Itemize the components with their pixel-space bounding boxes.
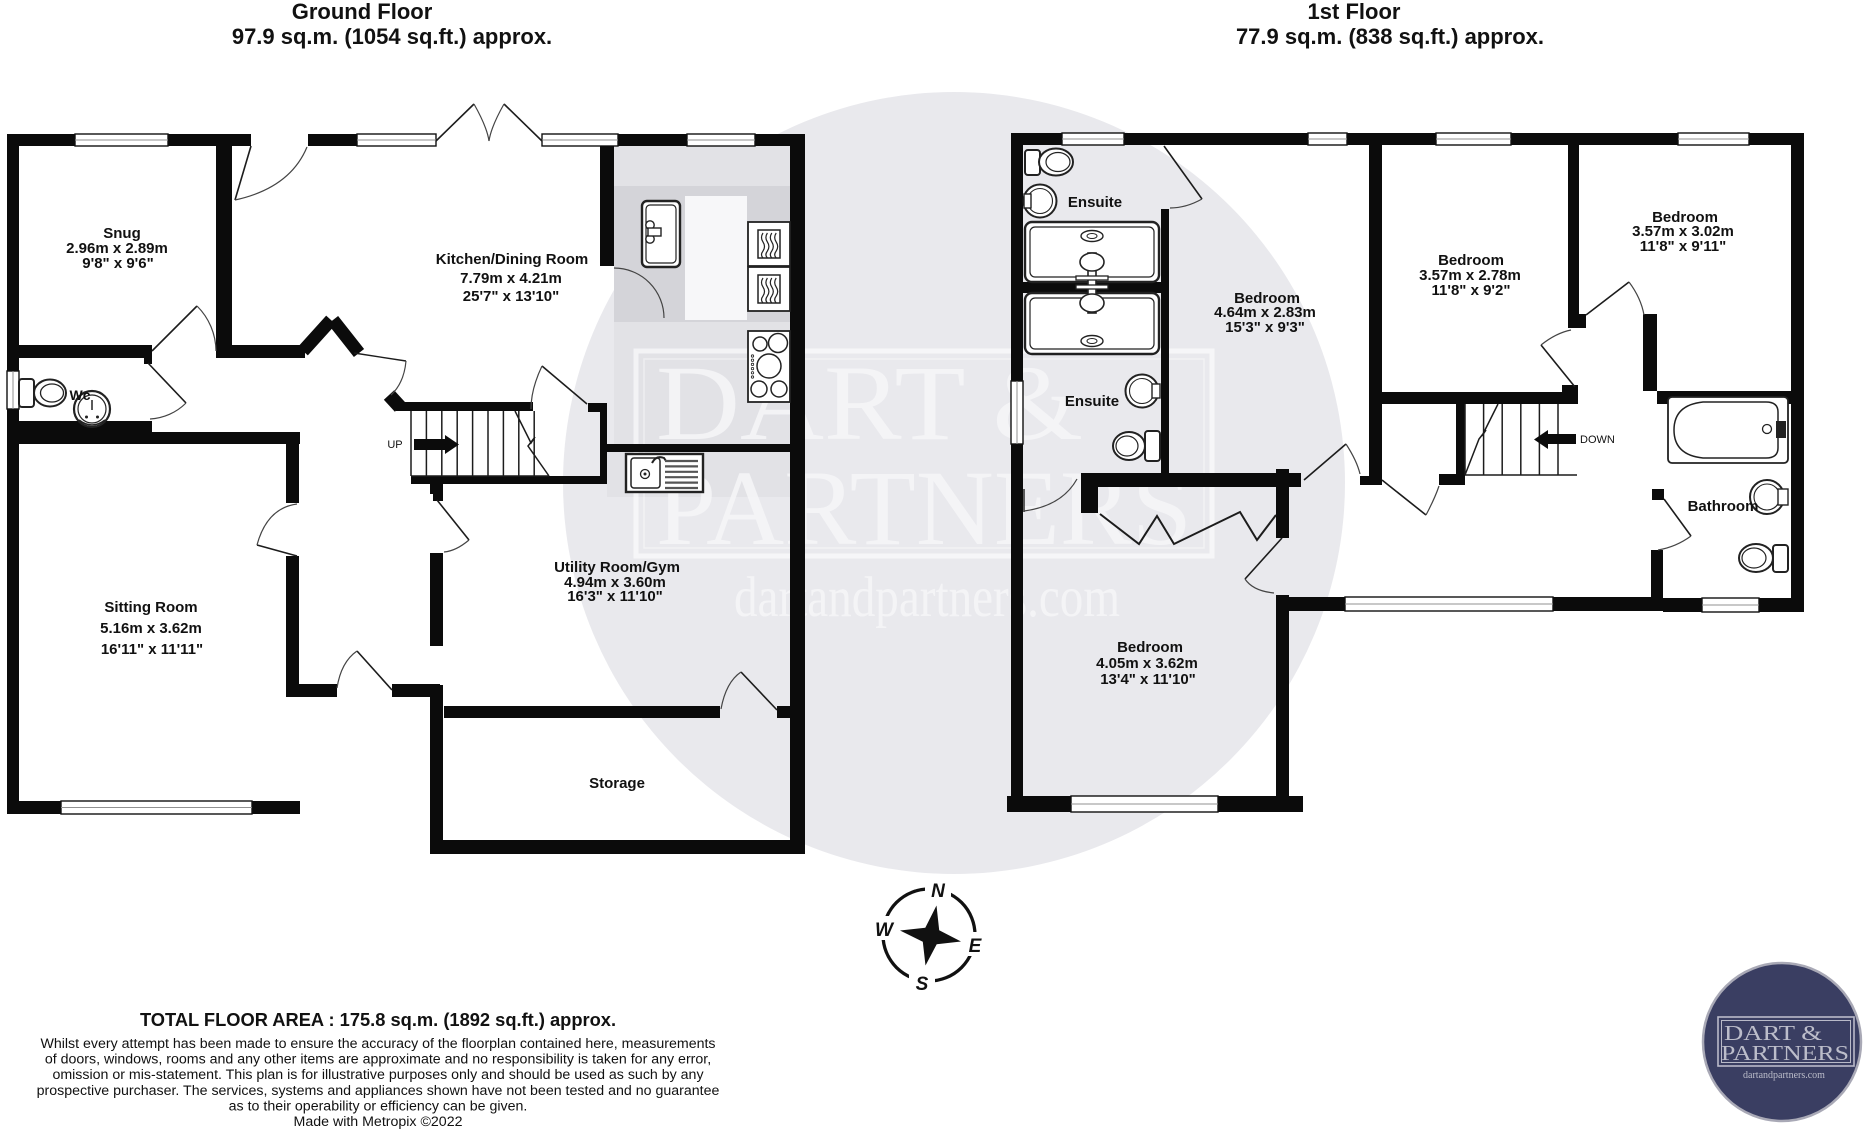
- svg-text:W: W: [875, 920, 895, 941]
- svg-text:prospective purchaser. The ser: prospective purchaser. The services, sys…: [37, 1083, 720, 1099]
- svg-text:9'8" x 9'6": 9'8" x 9'6": [82, 255, 153, 272]
- svg-text:Ensuite: Ensuite: [1068, 194, 1122, 211]
- svg-text:11'8" x 9'11": 11'8" x 9'11": [1640, 238, 1726, 255]
- svg-text:11'8" x 9'2": 11'8" x 9'2": [1432, 282, 1511, 299]
- svg-text:of doors, windows, rooms and a: of doors, windows, rooms and any other i…: [45, 1052, 711, 1068]
- svg-text:15'3" x 9'3": 15'3" x 9'3": [1225, 319, 1305, 336]
- svg-text:Ground Floor: Ground Floor: [292, 0, 433, 24]
- svg-text:PARTNERS: PARTNERS: [1721, 1041, 1849, 1065]
- svg-text:97.9 sq.m. (1054 sq.ft.) appro: 97.9 sq.m. (1054 sq.ft.) approx.: [232, 24, 552, 49]
- svg-text:PARTNERS: PARTNERS: [656, 450, 1192, 568]
- svg-text:Wc: Wc: [70, 387, 91, 403]
- svg-text:7.79m x 4.21m: 7.79m x 4.21m: [460, 270, 562, 287]
- svg-text:dartandpartners.com: dartandpartners.com: [1743, 1070, 1825, 1081]
- svg-text:Storage: Storage: [589, 775, 645, 792]
- svg-text:omission or mis-statement. Thi: omission or mis-statement. This plan is …: [52, 1067, 704, 1083]
- svg-text:N: N: [931, 881, 946, 902]
- svg-text:Kitchen/Dining Room: Kitchen/Dining Room: [436, 251, 589, 268]
- svg-text:S: S: [916, 974, 929, 995]
- svg-text:DOWN: DOWN: [1580, 434, 1615, 446]
- svg-text:Bathroom: Bathroom: [1688, 498, 1759, 515]
- svg-text:Ensuite: Ensuite: [1065, 393, 1119, 410]
- svg-text:TOTAL FLOOR AREA : 175.8 sq.m.: TOTAL FLOOR AREA : 175.8 sq.m. (1892 sq.…: [140, 1009, 616, 1030]
- svg-text:Sitting Room: Sitting Room: [104, 599, 197, 616]
- svg-text:25'7" x 13'10": 25'7" x 13'10": [463, 288, 559, 305]
- svg-text:E: E: [969, 936, 983, 957]
- svg-text:Whilst every attempt has been: Whilst every attempt has been made to en…: [40, 1036, 715, 1052]
- svg-text:Bedroom: Bedroom: [1117, 639, 1183, 656]
- svg-text:4.05m x 3.62m: 4.05m x 3.62m: [1096, 655, 1198, 672]
- svg-text:1st Floor: 1st Floor: [1308, 0, 1401, 24]
- svg-text:13'4" x 11'10": 13'4" x 11'10": [1100, 671, 1196, 688]
- svg-text:16'11" x 11'11": 16'11" x 11'11": [101, 641, 203, 658]
- svg-text:as to their operability or eff: as to their operability or efficiency ca…: [229, 1098, 528, 1114]
- svg-text:16'3" x 11'10": 16'3" x 11'10": [567, 588, 663, 605]
- svg-text:UP: UP: [387, 439, 402, 451]
- svg-text:Made with Metropix ©2022: Made with Metropix ©2022: [294, 1114, 463, 1130]
- svg-text:5.16m x 3.62m: 5.16m x 3.62m: [100, 620, 202, 637]
- svg-text:77.9 sq.m. (838 sq.ft.) approx: 77.9 sq.m. (838 sq.ft.) approx.: [1236, 24, 1544, 49]
